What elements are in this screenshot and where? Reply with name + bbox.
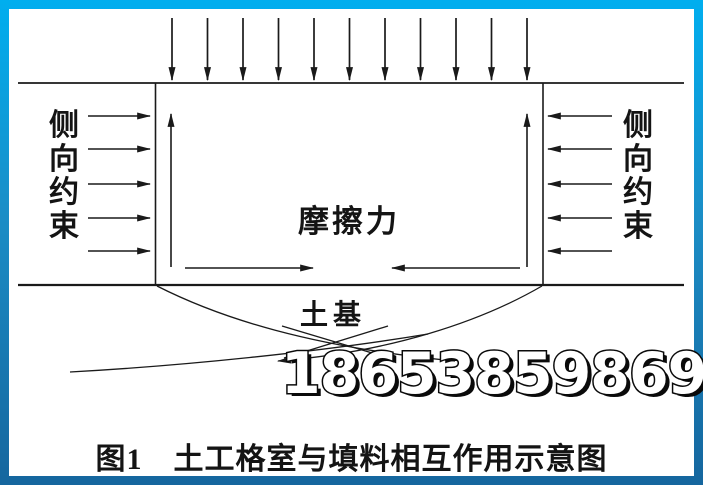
watermark-phone-number: 18653859869 [281, 341, 703, 407]
lateral-arrows-right-icon [548, 116, 612, 251]
friction-label: 摩擦力 [155, 196, 543, 241]
load-arrows-icon [172, 18, 527, 80]
lateral-arrows-left-icon [88, 116, 150, 251]
figure-caption: 图1 土工格室与填料相互作用示意图 [9, 434, 694, 478]
subgrade-label: 土基 [300, 293, 366, 333]
geocell-box-walls [156, 83, 544, 285]
left-constraint-label: 侧向约束 [47, 109, 81, 243]
diagram-linework [0, 0, 703, 485]
wall-friction-arrows-icon [171, 114, 527, 267]
right-constraint-label: 侧向约束 [621, 109, 655, 243]
